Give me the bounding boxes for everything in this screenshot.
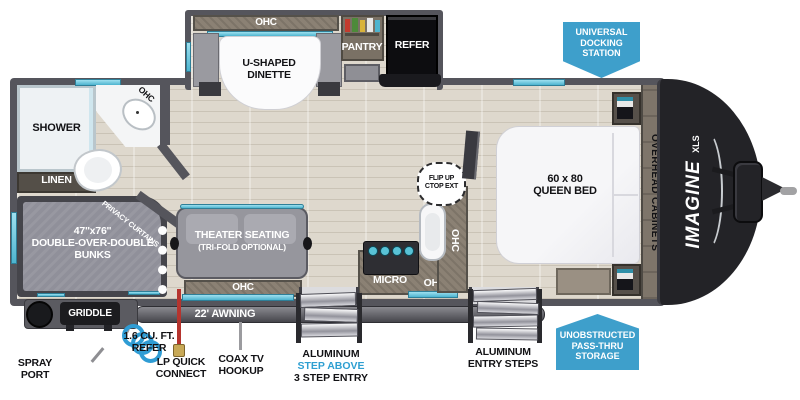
logo-swoosh xyxy=(689,130,723,252)
bedroom-dresser xyxy=(556,268,611,295)
bath-wall-right xyxy=(160,85,170,145)
docking-station-badge: UNIVERSAL DOCKING STATION xyxy=(563,22,640,78)
pantry-item-white xyxy=(367,18,373,32)
toilet-bowl xyxy=(84,157,112,183)
flip-up-label: FLIP UP CTOP EXT xyxy=(419,175,464,191)
bedroom-window-top xyxy=(513,79,565,86)
griddle-leg-left xyxy=(66,325,74,331)
spray-nozzle xyxy=(91,347,105,363)
nightstand-top-screen xyxy=(617,97,633,119)
bunk-accent-right xyxy=(128,291,160,295)
queen-bed-label: 60 x 80 QUEEN BED xyxy=(505,173,625,198)
bath-sink-drain xyxy=(136,111,139,114)
dinette-bench-end-left xyxy=(199,82,221,96)
shower-label: SHOWER xyxy=(17,122,96,134)
privacy-curtain xyxy=(158,226,167,294)
refer-base xyxy=(379,74,441,87)
step-above-line3: 3 STEP ENTRY xyxy=(284,373,378,385)
pantry-item-teal xyxy=(375,20,380,32)
micro-label: MICRO xyxy=(360,275,420,287)
kitchen-ohc-vertical-label: OHC xyxy=(446,216,460,264)
dinette-bench-end-right xyxy=(318,82,340,96)
pantry-label: PANTRY xyxy=(336,42,388,54)
pantry-counter-appliance xyxy=(344,64,380,82)
nightstand-bottom-screen xyxy=(617,269,633,290)
stove-burner-3 xyxy=(392,246,402,256)
brand-logo: IMAGINE XLS xyxy=(683,127,727,257)
bath-window xyxy=(75,79,121,86)
floorplan-diagram: OHC U-SHAPED DINETTE PANTRY REFER SHOWER… xyxy=(0,0,800,400)
passthru-storage-badge: UNOBSTRUCTED PASS-THRU STORAGE xyxy=(556,314,639,370)
refer-label: REFER xyxy=(386,40,438,52)
step-above-line1: ALUMINUM xyxy=(284,349,378,361)
mini-refer-label: 1.6 CU. FT. REFER xyxy=(108,331,190,355)
theater-window xyxy=(182,294,294,301)
stove-burner-1 xyxy=(368,246,378,256)
dinette-label: U-SHAPED DINETTE xyxy=(219,58,319,82)
theater-accent xyxy=(180,204,304,209)
dinette-bench-left xyxy=(193,33,219,87)
dinette-ohc-label: OHC xyxy=(193,17,339,28)
stove-burner-2 xyxy=(380,246,390,256)
bunk-rear-window xyxy=(11,212,17,264)
dinette-window-left xyxy=(186,42,191,72)
bunk-accent-left xyxy=(37,293,65,297)
step-above-label: ALUMINUM STEP ABOVE 3 STEP ENTRY xyxy=(284,349,378,384)
griddle-label: GRIDDLE xyxy=(60,308,120,319)
pantry-item-red xyxy=(345,19,350,32)
aluminum-entry-steps xyxy=(468,287,542,345)
pantry-item-green xyxy=(352,18,358,32)
step-above-line2: STEP ABOVE xyxy=(284,361,378,373)
step-above-3step-entry xyxy=(296,291,362,345)
coax-line xyxy=(239,322,242,350)
stove-burner-4 xyxy=(404,246,414,256)
hitch-jack-handle xyxy=(780,187,797,195)
theater-sub-label: (TRI-FOLD OPTIONAL) xyxy=(178,243,306,253)
pantry-item-yellow xyxy=(360,20,365,32)
theater-ohc-label: OHC xyxy=(184,282,302,293)
propane-cover xyxy=(733,161,763,223)
griddle-tank xyxy=(26,301,53,328)
pantry-shelf xyxy=(345,33,379,36)
coax-label: COAX TV HOOKUP xyxy=(201,354,281,378)
entry-steps-label: ALUMINUM ENTRY STEPS xyxy=(456,347,550,371)
theater-label: THEATER SEATING xyxy=(178,230,306,242)
spray-port-label: SPRAY PORT xyxy=(2,358,68,382)
kitchen-sink-basin xyxy=(425,213,440,251)
